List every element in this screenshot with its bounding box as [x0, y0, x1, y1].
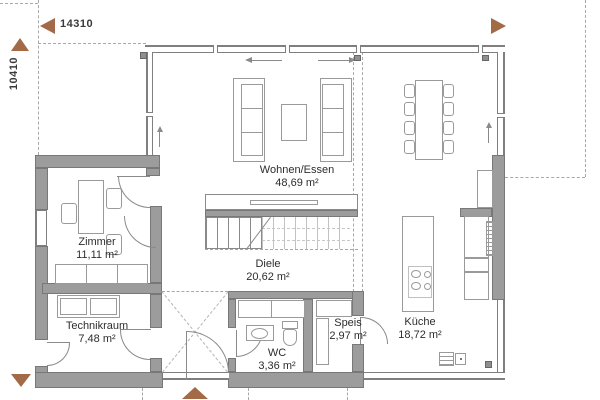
room-area: 2,97 m² [329, 330, 366, 343]
technik-cabinet-door [90, 298, 117, 315]
section-dash-2 [362, 52, 363, 292]
dining-chair [443, 121, 454, 135]
kitchen-tall-unit [477, 170, 493, 208]
mullion-tick [478, 45, 483, 53]
sofa-cushion-line [322, 132, 344, 133]
mullion-tick [146, 112, 153, 117]
slider-arrow-left-icon [250, 60, 282, 61]
dining-chair [404, 84, 415, 98]
floor-box-dot [460, 358, 462, 360]
sideboard-divider [86, 264, 87, 284]
room-area: 48,69 m² [260, 177, 334, 190]
kitchen-appliance-hatch [486, 221, 493, 256]
dining-chair [443, 102, 454, 116]
kitchen-counter [464, 258, 489, 272]
room-label-wc: WC 3,36 m² [258, 347, 295, 373]
mullion-tick [213, 45, 218, 53]
sideboard-divider [117, 264, 118, 284]
stair-handrail [250, 200, 318, 205]
room-label-kueche: Küche 18,72 m² [398, 316, 441, 342]
floor-vent [439, 352, 454, 366]
entrance-threshold [163, 372, 229, 380]
speis-shelf-top [316, 300, 352, 317]
door-arc-entrance [187, 331, 229, 373]
dining-chair [443, 84, 454, 98]
sofa-cushion-line [241, 132, 263, 133]
window-east-lower [497, 300, 505, 372]
dining-chair [404, 140, 415, 154]
burner [424, 283, 431, 290]
room-name: Diele [246, 258, 289, 271]
wc-cabinet-divider [271, 300, 272, 318]
dim-arrow-left-icon [40, 18, 55, 34]
room-area: 11,11 m² [76, 249, 118, 262]
entrance-arrow-icon [182, 387, 208, 399]
room-area: 18,72 m² [398, 329, 441, 342]
stair-dash-line [262, 240, 350, 241]
dim-arrow-down-icon [11, 374, 31, 387]
dim-height-label: 10410 [8, 57, 20, 90]
reference-dash-top [0, 3, 38, 4]
dim-width-label: 14310 [60, 18, 93, 30]
room-label-speis: Speis 2,97 m² [329, 317, 366, 343]
wall-west-upper [35, 168, 48, 210]
section-dash-1 [353, 52, 354, 292]
column-post [485, 361, 492, 368]
mullion-tick [285, 45, 290, 53]
column-post [354, 55, 361, 61]
axis-stub-2 [248, 388, 249, 400]
desk [78, 180, 104, 234]
mullion-tick [497, 113, 505, 118]
window-south-facade-top [145, 45, 505, 53]
entrance-sidelight-divider [186, 372, 187, 380]
window-opening-arrow-icon [159, 130, 160, 147]
desk-chair [61, 203, 77, 224]
wall-wc-west-1 [228, 299, 236, 328]
terrace-outline-v [585, 0, 586, 177]
wall-zimmer-north [35, 155, 160, 168]
dining-table [415, 80, 443, 160]
burner [411, 270, 421, 278]
wall-wc-north [228, 291, 364, 299]
column-post [140, 52, 147, 59]
technik-cabinet-door [60, 298, 87, 315]
room-label-diele: Diele 20,62 m² [246, 258, 289, 284]
dining-chair [404, 121, 415, 135]
sofa-right-seat [322, 84, 344, 156]
kitchen-counter [464, 272, 489, 300]
room-label-zimmer: Zimmer 11,11 m² [76, 236, 118, 262]
window-east-upper [497, 52, 505, 155]
sideboard [55, 264, 148, 284]
speis-shelf-side [316, 318, 329, 365]
toilet-tank [282, 321, 298, 329]
slider-arrow-left-head-icon [245, 57, 252, 63]
wall-corner-block [146, 168, 160, 176]
room-name: Wohnen/Essen [260, 164, 334, 177]
dim-arrow-up-icon [11, 38, 29, 51]
dimension-line-top [38, 43, 146, 44]
wall-zimmer-technik-divider [42, 283, 162, 294]
room-area: 20,62 m² [246, 271, 289, 284]
window-opening-arrow-icon [488, 126, 489, 143]
stair-side-wall [205, 210, 358, 217]
wall-speis-east-1 [352, 291, 364, 316]
window-opening-arrow-head-icon [486, 122, 492, 128]
room-name: Speis [329, 317, 366, 330]
mullion-tick [356, 45, 361, 53]
axis-stub-1 [142, 388, 143, 400]
coffee-table [281, 104, 307, 141]
entry-dash-top [162, 291, 228, 292]
door-arc-zimmer [118, 176, 150, 208]
wall-east-main [492, 155, 505, 300]
sofa-left-seat [241, 84, 263, 156]
room-name: Küche [398, 316, 441, 329]
wall-diele-west-3 [150, 358, 162, 372]
room-name: WC [258, 347, 295, 360]
dim-arrow-right-icon [491, 18, 506, 34]
room-area: 3,36 m² [258, 360, 295, 373]
wall-south-middle [228, 372, 364, 388]
stair-treads-above [262, 217, 350, 249]
window-west-living [146, 52, 153, 155]
window-west-zimmer [35, 210, 47, 246]
wall-diele-west-2 [150, 294, 162, 328]
window-opening-arrow-head-icon [157, 126, 163, 132]
axis-stub-3 [347, 388, 348, 400]
room-label-wohnen-essen: Wohnen/Essen 48,69 m² [260, 164, 334, 190]
room-name: Zimmer [76, 236, 118, 249]
slider-arrow-right-icon [318, 60, 350, 61]
dimension-line-left [38, 0, 39, 155]
column-post [482, 55, 489, 61]
wall-wc-west-2 [228, 358, 236, 372]
room-area: 7,48 m² [66, 333, 128, 346]
stair-treads [205, 217, 262, 249]
sofa-cushion-line [322, 108, 344, 109]
burner [424, 271, 431, 278]
window-south-kitchen [364, 372, 505, 380]
stair-dash-bottom [205, 249, 358, 250]
dining-chair [404, 102, 415, 116]
stair-dash-line [262, 228, 350, 229]
sofa-cushion-line [241, 108, 263, 109]
room-label-technikraum: Technikraum 7,48 m² [66, 320, 128, 346]
door-arc-technikraum-west [47, 343, 70, 366]
toilet-bowl [283, 329, 297, 346]
door-arc-diele [124, 216, 156, 248]
sink-basin [251, 328, 268, 339]
dining-chair [443, 140, 454, 154]
room-name: Technikraum [66, 320, 128, 333]
wall-speis-east-2 [352, 344, 364, 372]
burner [411, 282, 421, 290]
floor-plan: 14310 10410 [0, 0, 600, 400]
terrace-outline-h [505, 177, 585, 178]
desk-chair [106, 188, 122, 209]
wall-south-wing [35, 372, 163, 388]
